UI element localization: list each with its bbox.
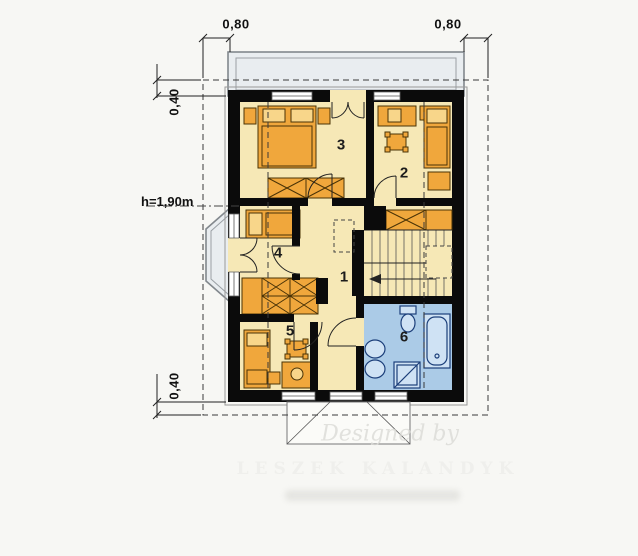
room-number-bedroom-4: 4 — [274, 245, 282, 262]
dimension-label-left-bottom: 0,40 — [167, 372, 182, 399]
window — [374, 92, 400, 100]
bay-door-opening — [228, 238, 240, 272]
ceiling-height-label: h=1,90m — [141, 194, 193, 209]
room-number-hall: 1 — [340, 269, 348, 286]
dimension-label-top-left: 0,80 — [222, 17, 249, 32]
wardrobe-row — [242, 278, 318, 314]
pillow — [291, 109, 313, 122]
nightstand — [244, 108, 256, 124]
room-number-bedroom-5: 5 — [286, 323, 294, 340]
floor-plan-page: 0,80 0,80 0,40 0,40 h=1,90m 1 2 3 4 5 6 … — [0, 0, 638, 556]
shower — [394, 362, 420, 388]
watermark-designed-by: Designed by — [321, 422, 459, 447]
pillow — [427, 109, 447, 123]
dimension-label-left-top: 0,40 — [167, 88, 182, 115]
nightstand — [318, 108, 330, 124]
balcony-door-opening — [330, 90, 366, 102]
room-number-bedroom-3: 3 — [337, 137, 345, 154]
bathtub — [424, 314, 450, 368]
chair — [385, 132, 408, 152]
wardrobe — [268, 178, 344, 198]
window — [330, 392, 362, 400]
watermark-author-name: LESZEK KALANDYK — [237, 459, 520, 479]
plant-pot — [291, 368, 303, 380]
pillow — [249, 213, 262, 235]
chair — [285, 339, 308, 359]
hall-wardrobe — [386, 210, 452, 230]
balcony — [228, 52, 464, 96]
pillow — [247, 333, 267, 346]
desk-lamp — [388, 109, 401, 122]
chest — [428, 172, 450, 190]
window — [282, 392, 315, 400]
watermark-blurred-line — [285, 490, 460, 501]
bay-window — [206, 208, 230, 302]
window — [272, 92, 312, 100]
window — [375, 392, 407, 400]
dimension-label-top-right: 0,80 — [434, 17, 461, 32]
room-number-bedroom-2: 2 — [400, 165, 408, 182]
stool — [268, 372, 280, 384]
room-number-bathroom: 6 — [400, 329, 408, 346]
pillow — [263, 109, 285, 122]
